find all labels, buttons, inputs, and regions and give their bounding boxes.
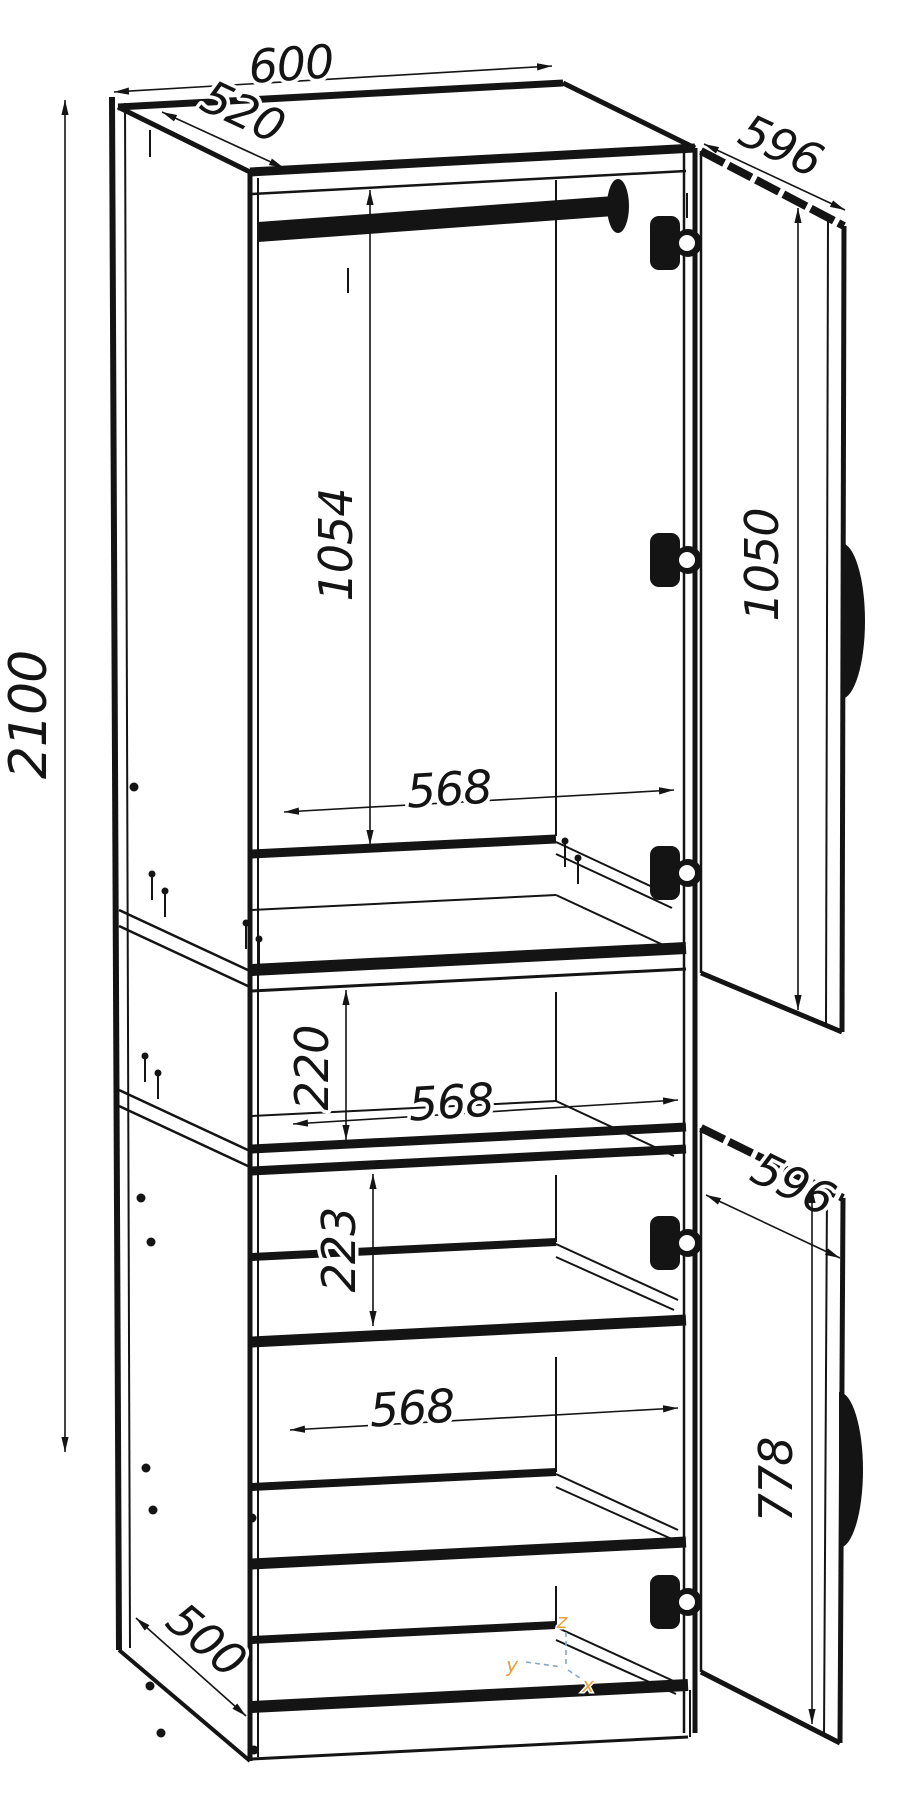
dim-upper-interior-width-label: 568 [405,759,493,818]
lower-door [701,1128,863,1743]
dowel-pin [575,855,582,885]
lower-door-handle [839,1392,863,1548]
axis-z-label: z [556,1609,568,1633]
dim-niche-width-label: 568 [407,1072,495,1131]
dim-niche-width: 568 [293,1072,678,1131]
dim-top-width-label: 600 [247,34,335,94]
dim-niche-height: 220 [285,990,346,1140]
dim-lower-first-gap: 223 [312,1174,373,1326]
dim-niche-height-label: 220 [285,1026,339,1111]
axis-y-label: y [505,1653,519,1677]
hanging-rod [258,179,629,242]
dim-lower-interior-width: 568 [290,1378,678,1437]
dim-upper-door-height-label: 1050 [735,508,789,621]
dim-upper-interior-width: 568 [284,759,674,818]
dim-lower-first-gap-label: 223 [312,1208,366,1293]
upper-door-handle [841,543,865,699]
axis-x-label: x [581,1673,594,1697]
left-side-panel [112,97,250,1761]
dim-total-height-label: 2100 [0,651,59,779]
dowel-pin [256,936,263,966]
dim-total-height: 2100 [0,100,65,1452]
dim-lower-door-height-label: 778 [749,1438,803,1523]
dim-upper-interior-height-label: 1054 [309,488,363,601]
diagram-canvas: z y x 2100 600 520 596 1054 1050 568 220… [0,0,908,1800]
bottom-panel [252,1625,688,1707]
lower-shelf-2 [252,1472,686,1564]
dowel-pin [562,838,569,868]
wardrobe-dimension-drawing: z y x 2100 600 520 596 1054 1050 568 220… [0,0,908,1800]
upper-module-floor [252,839,686,991]
dim-upper-interior-height: 1054 [309,190,370,845]
dim-lower-interior-width-label: 568 [368,1378,456,1437]
